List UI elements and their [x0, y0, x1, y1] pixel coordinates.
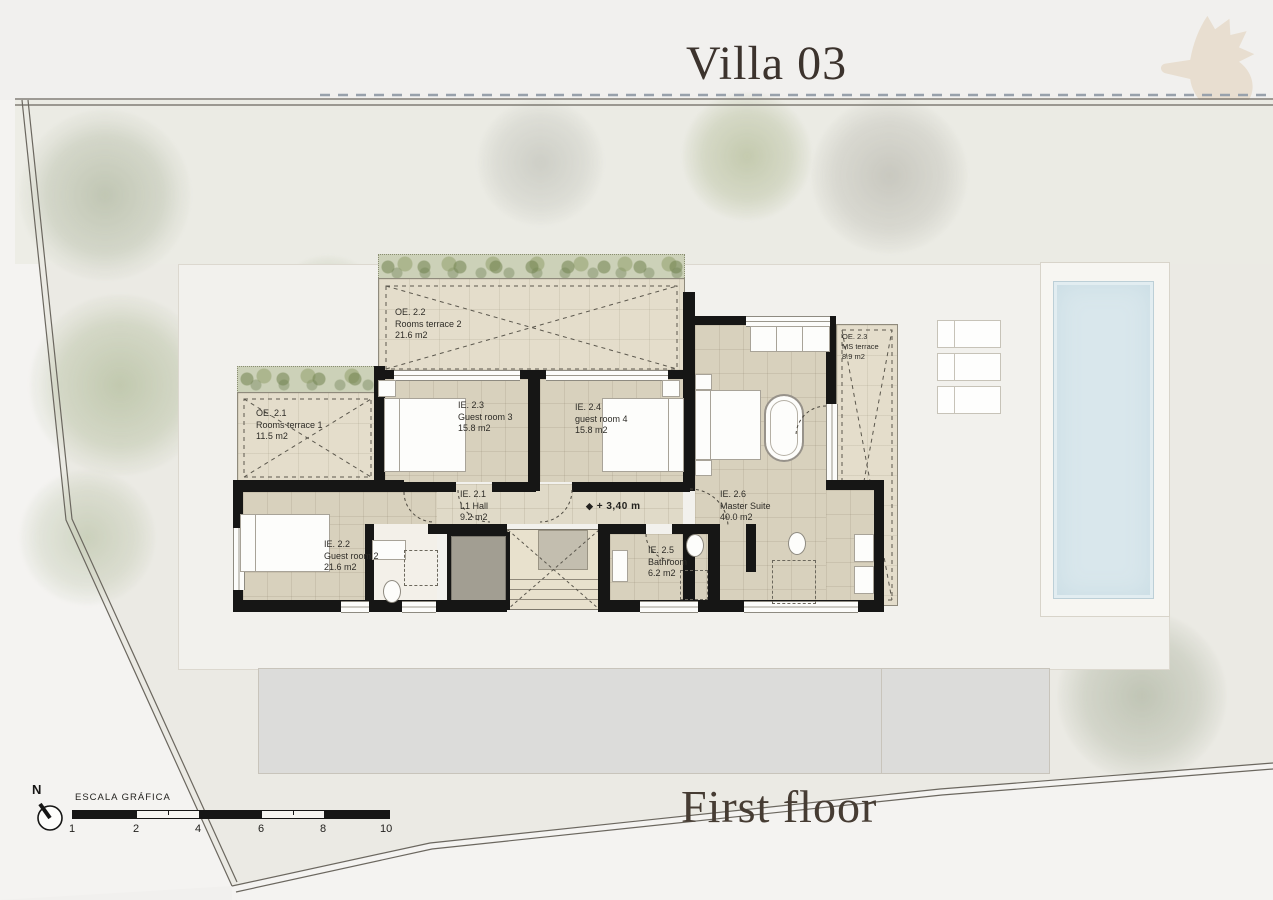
- room-label-hall: IE. 2.1 L1 Hall 9.2 m2: [460, 489, 488, 524]
- level-text: + 3,40 m: [597, 501, 641, 512]
- room-name: MS terrace: [842, 342, 892, 352]
- room-name: Bathroom: [648, 557, 687, 569]
- north-label: N: [32, 782, 41, 797]
- scale-bar-ruler: [72, 810, 390, 819]
- scale-tick: 8: [320, 823, 326, 835]
- level-annotation: ◆ + 3,40 m: [586, 501, 640, 512]
- level-marker-icon: ◆: [586, 501, 593, 511]
- room-code: IE. 2.1: [460, 489, 488, 501]
- room-name: Rooms terrace 2: [395, 319, 462, 331]
- room-label-guest-room-4: IE. 2.4 guest room 4 15.8 m2: [575, 402, 628, 437]
- room-name: guest room 4: [575, 414, 628, 426]
- room-name: Guest room 2: [324, 551, 379, 563]
- room-code: OE. 2.3: [842, 332, 892, 342]
- scale-tick: 4: [195, 823, 201, 835]
- scale-tick: 2: [133, 823, 139, 835]
- room-name: Rooms terrace 1: [256, 420, 323, 432]
- room-label-ms-terrace: OE. 2.3 MS terrace 8.9 m2: [842, 332, 892, 362]
- room-name: L1 Hall: [460, 501, 488, 513]
- room-area: 9.2 m2: [460, 512, 488, 524]
- scale-bar: ESCALA GRÁFICA 1 2 4 6 8 10: [60, 790, 410, 842]
- room-label-master-suite: IE. 2.6 Master Suite 40.0 m2: [720, 489, 771, 524]
- room-label-rooms-terrace-1: OE. 2.1 Rooms terrace 1 11.5 m2: [256, 408, 323, 443]
- room-label-bathroom: IE. 2.5 Bathroom 6.2 m2: [648, 545, 687, 580]
- room-code: IE. 2.6: [720, 489, 771, 501]
- room-area: 11.5 m2: [256, 431, 323, 443]
- floor-label: First floor: [681, 780, 877, 833]
- room-label-rooms-terrace-2: OE. 2.2 Rooms terrace 2 21.6 m2: [395, 307, 462, 342]
- floor-plan-page: OE. 2.2 Rooms terrace 2 21.6 m2 OE. 2.1 …: [0, 0, 1273, 900]
- room-name: Guest room 3: [458, 412, 513, 424]
- room-area: 40.0 m2: [720, 512, 771, 524]
- room-area: 21.6 m2: [395, 330, 462, 342]
- room-area: 15.8 m2: [575, 425, 628, 437]
- scale-tick: 1: [69, 823, 75, 835]
- site-boundary: [0, 0, 1273, 900]
- room-label-guest-room-2: IE. 2.2 Guest room 2 21.6 m2: [324, 539, 379, 574]
- scale-tick: 6: [258, 823, 264, 835]
- page-title: Villa 03: [686, 36, 847, 91]
- room-area: 6.2 m2: [648, 568, 687, 580]
- room-code: IE. 2.4: [575, 402, 628, 414]
- room-name: Master Suite: [720, 501, 771, 513]
- room-code: OE. 2.2: [395, 307, 462, 319]
- room-code: OE. 2.1: [256, 408, 323, 420]
- room-code: IE. 2.3: [458, 400, 513, 412]
- scale-bar-title: ESCALA GRÁFICA: [75, 792, 171, 803]
- room-area: 8.9 m2: [842, 352, 892, 362]
- room-code: IE. 2.2: [324, 539, 379, 551]
- scale-tick: 10: [380, 823, 392, 835]
- room-area: 15.8 m2: [458, 423, 513, 435]
- room-area: 21.6 m2: [324, 562, 379, 574]
- room-code: IE. 2.5: [648, 545, 687, 557]
- room-label-guest-room-3: IE. 2.3 Guest room 3 15.8 m2: [458, 400, 513, 435]
